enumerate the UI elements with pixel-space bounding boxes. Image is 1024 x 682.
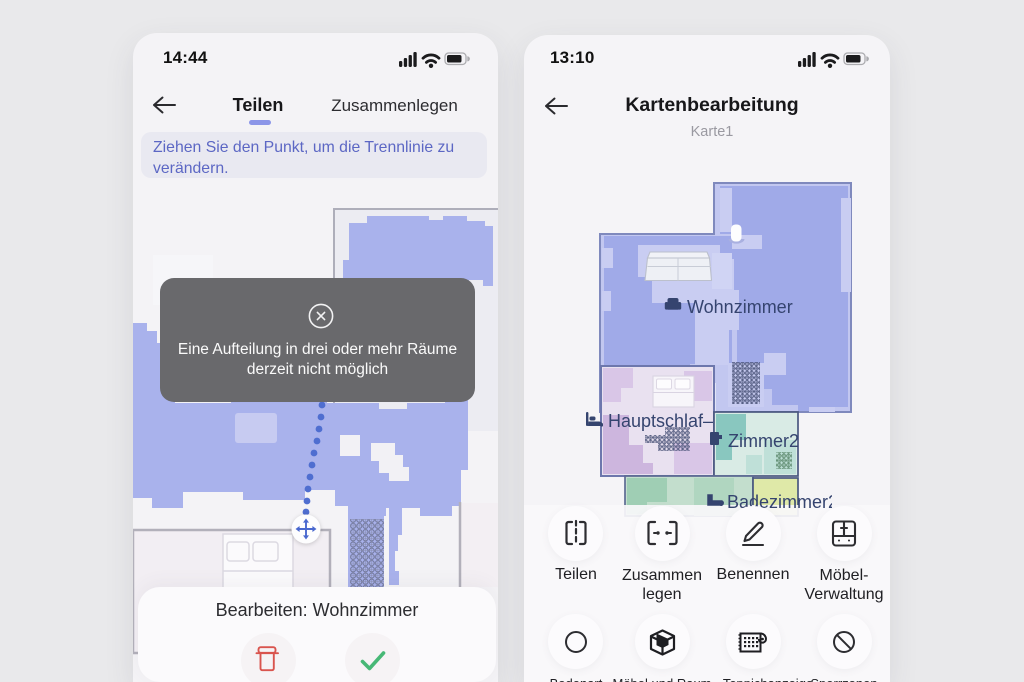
svg-text:Wohnzimmer: Wohnzimmer	[687, 297, 793, 317]
svg-text:Zimmer2: Zimmer2	[728, 431, 799, 451]
svg-text:Hauptschlaf–: Hauptschlaf–	[608, 411, 713, 431]
